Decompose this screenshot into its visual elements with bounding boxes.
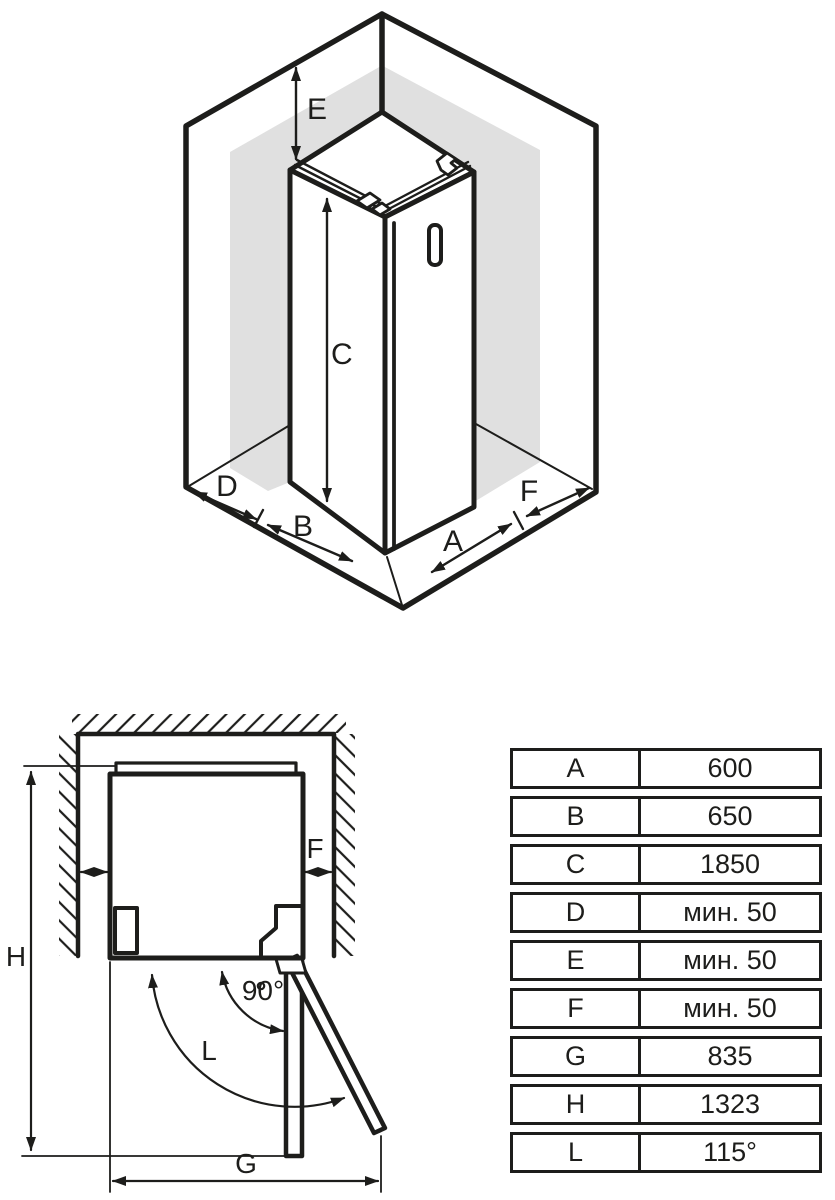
fridge-door-handle bbox=[429, 225, 441, 265]
dim-label-f-plan: F bbox=[306, 833, 323, 864]
dim-label-f: F bbox=[520, 475, 538, 508]
plan-view: H F 90° L G bbox=[6, 714, 385, 1192]
dimension-value: 1323 bbox=[641, 1087, 819, 1122]
hatching-right-wall bbox=[336, 734, 355, 956]
table-row: L 115° bbox=[510, 1132, 822, 1173]
dimension-key: H bbox=[513, 1087, 641, 1122]
table-row: C 1850 bbox=[510, 844, 822, 885]
dimension-key: B bbox=[513, 799, 641, 834]
dim-label-e: E bbox=[307, 93, 327, 126]
dimension-value: 835 bbox=[641, 1039, 819, 1074]
dimension-value: 600 bbox=[641, 751, 819, 786]
dim-label-b: B bbox=[293, 510, 313, 543]
dimension-value: мин. 50 bbox=[641, 943, 819, 978]
dimension-value: 1850 bbox=[641, 847, 819, 882]
table-row: A 600 bbox=[510, 748, 822, 789]
dimension-value: 650 bbox=[641, 799, 819, 834]
table-row: B 650 bbox=[510, 796, 822, 837]
dim-label-a: A bbox=[443, 525, 463, 558]
dimension-value: мин. 50 bbox=[641, 895, 819, 930]
dimension-key: G bbox=[513, 1039, 641, 1074]
dimension-value: 115° bbox=[641, 1135, 819, 1170]
dim-label-g: G bbox=[235, 1148, 257, 1179]
dim-label-c: C bbox=[331, 338, 353, 371]
hatching-top-wall bbox=[72, 714, 346, 733]
dim-label-l: L bbox=[201, 1035, 217, 1066]
dimension-key: E bbox=[513, 943, 641, 978]
dim-label-90deg: 90° bbox=[242, 975, 284, 1006]
dimension-key: A bbox=[513, 751, 641, 786]
hatching-left-wall bbox=[59, 734, 78, 956]
table-row: D мин. 50 bbox=[510, 892, 822, 933]
dimension-value: мин. 50 bbox=[641, 991, 819, 1026]
table-row: E мин. 50 bbox=[510, 940, 822, 981]
table-row: F мин. 50 bbox=[510, 988, 822, 1029]
dimensions-table: A 600 B 650 C 1850 D мин. 50 E мин. 50 F… bbox=[510, 748, 822, 1180]
table-row: H 1323 bbox=[510, 1084, 822, 1125]
dimension-key: F bbox=[513, 991, 641, 1026]
dim-label-h: H bbox=[6, 941, 26, 972]
dimension-key: L bbox=[513, 1135, 641, 1170]
dim-tick-a-f bbox=[514, 512, 523, 529]
dimension-key: C bbox=[513, 847, 641, 882]
dimension-key: D bbox=[513, 895, 641, 930]
door-hinge-bracket bbox=[276, 959, 306, 973]
dim-label-d: D bbox=[216, 470, 238, 503]
isometric-view: E C D B A F bbox=[186, 14, 596, 608]
table-row: G 835 bbox=[510, 1036, 822, 1077]
